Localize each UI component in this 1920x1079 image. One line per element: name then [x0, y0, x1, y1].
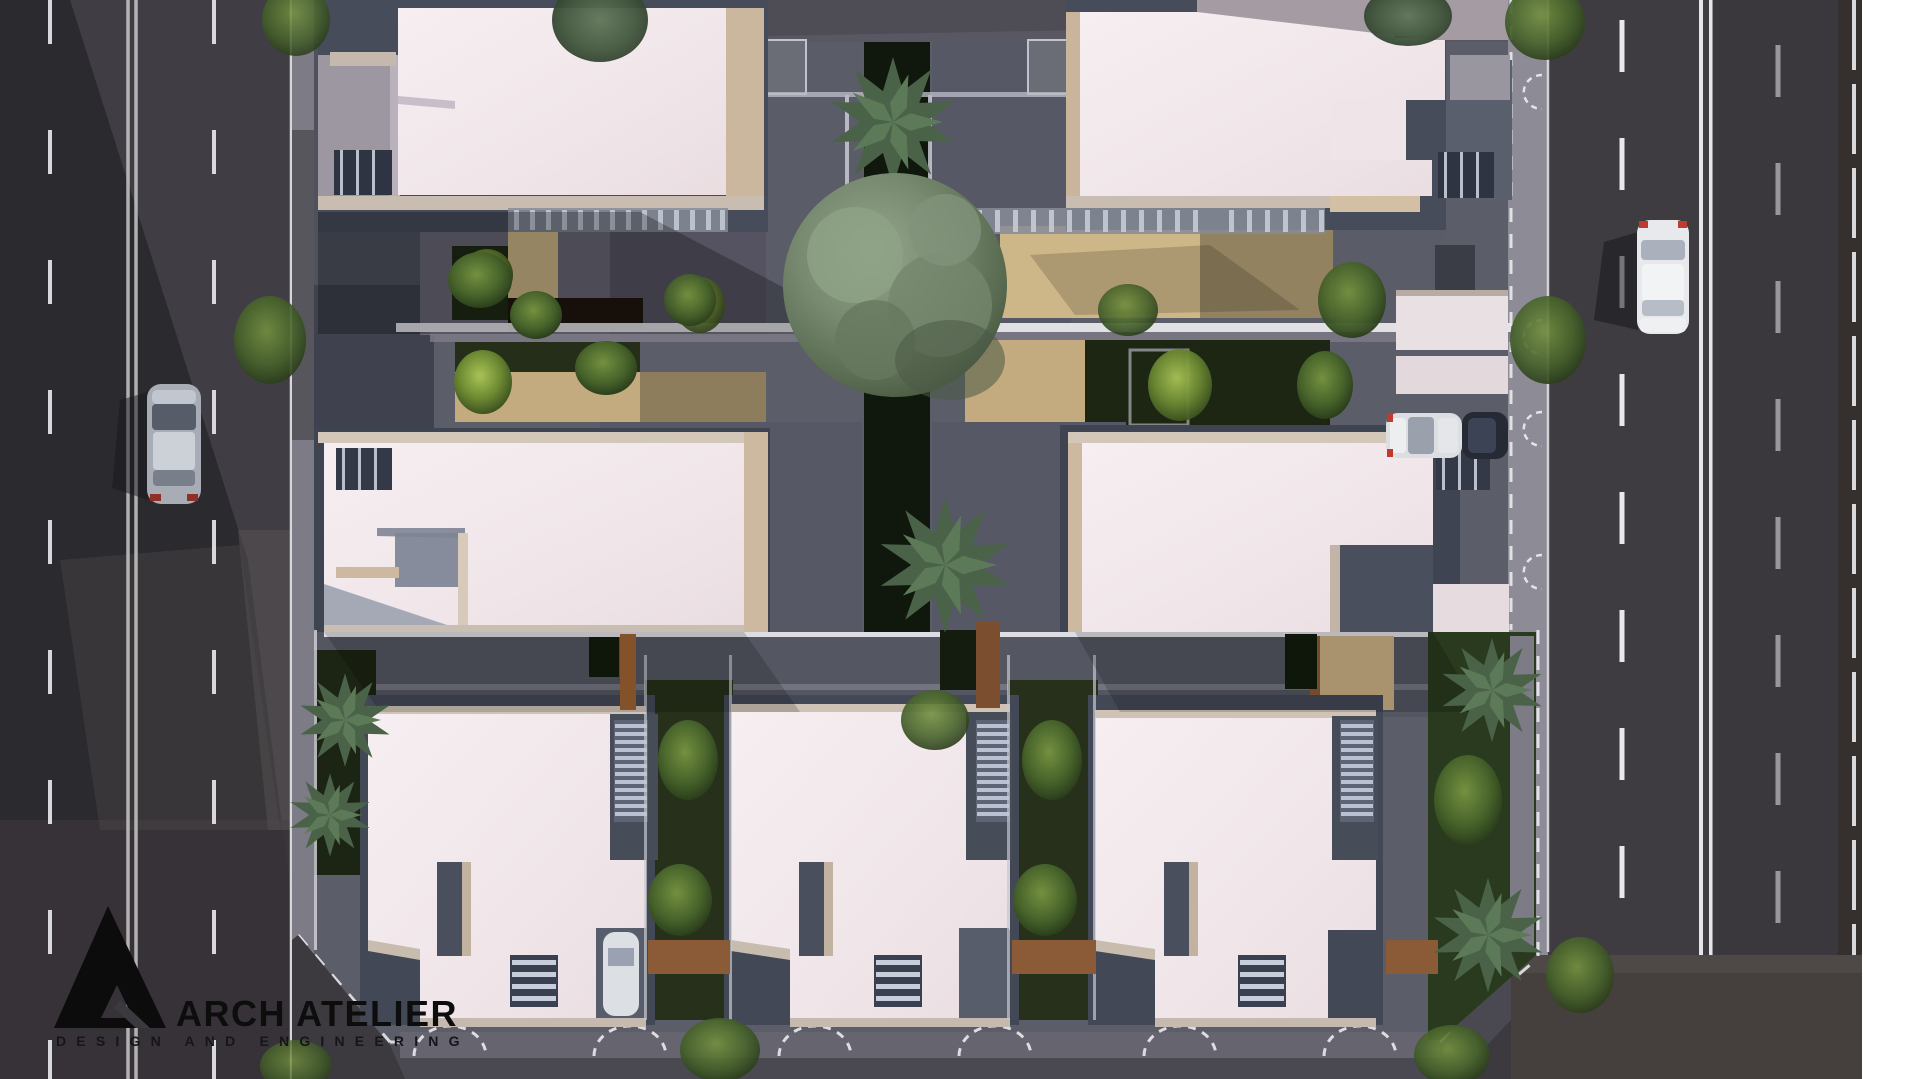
svg-text:DESIGN AND ENGINEERING: DESIGN AND ENGINEERING — [56, 1033, 470, 1049]
svg-text:ARCH ATELIER: ARCH ATELIER — [176, 993, 458, 1034]
